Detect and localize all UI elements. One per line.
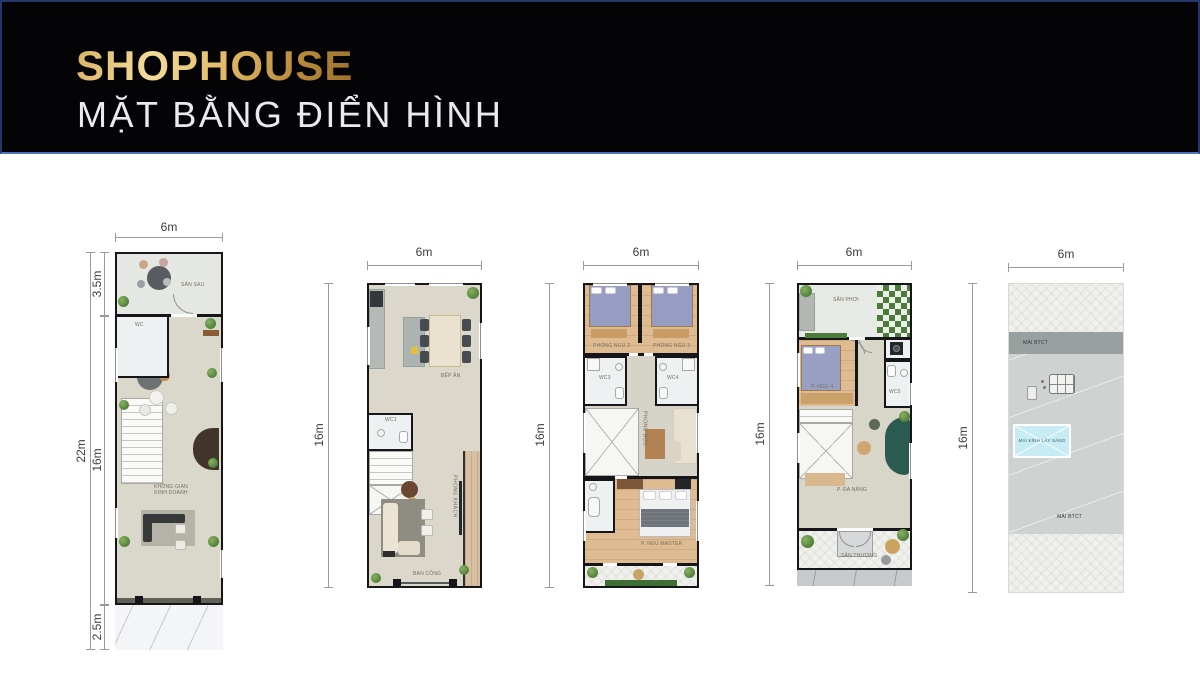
- plan5-width-label: 6m: [1058, 247, 1075, 261]
- door-gap: [629, 353, 638, 356]
- plan3-height-dimension-line: [549, 283, 550, 588]
- plant: [459, 565, 469, 575]
- window: [909, 383, 913, 405]
- window: [696, 501, 700, 541]
- front-porch: [115, 605, 223, 650]
- island-item: [411, 347, 418, 354]
- plan4-height-dimension-line: [769, 283, 770, 586]
- wicker-chair: [885, 539, 900, 554]
- drying-yard-label: SÂN PHƠI: [833, 297, 859, 303]
- terrace-label: SÂN THƯỢNG: [841, 553, 877, 559]
- door-gap: [603, 563, 617, 566]
- plan1-total-height-label: 22m: [74, 439, 88, 462]
- plan3-width-dimension-line: [583, 265, 699, 266]
- plan2-width-label: 6m: [416, 245, 433, 259]
- header-banner: SHOPHOUSE MẶT BẰNG ĐIỂN HÌNH: [0, 0, 1200, 154]
- display-table: [139, 404, 151, 416]
- roof-vent: [1043, 386, 1046, 389]
- balcony-post: [393, 579, 401, 587]
- plant: [899, 411, 910, 422]
- door-gap: [663, 563, 677, 566]
- plant: [205, 318, 216, 329]
- living-room-label: PHÒNG KHÁCH: [451, 475, 457, 537]
- yard-divider-wall: [117, 314, 221, 317]
- wc4-label: WC4: [667, 375, 679, 381]
- window: [220, 550, 224, 578]
- door-gap: [837, 528, 873, 531]
- page-subtitle: MẶT BẰNG ĐIỂN HÌNH: [77, 94, 503, 136]
- plant: [897, 529, 909, 541]
- window: [655, 282, 689, 286]
- yard-chair: [159, 258, 168, 267]
- sink: [615, 363, 623, 371]
- plant: [684, 567, 695, 578]
- plant: [207, 368, 217, 378]
- sink: [900, 369, 908, 377]
- window: [582, 413, 586, 453]
- wicker-chair: [633, 569, 644, 580]
- staircase: [799, 409, 853, 423]
- shower: [587, 358, 600, 371]
- wc1-label: WC1: [385, 417, 397, 423]
- dining-chair: [420, 351, 429, 363]
- side-table: [869, 419, 880, 430]
- window: [909, 443, 913, 479]
- plant: [119, 536, 130, 547]
- dining-chair: [462, 319, 471, 331]
- plant: [800, 285, 812, 297]
- pillow: [815, 347, 825, 354]
- wc3-label: WC3: [599, 375, 611, 381]
- toilet: [659, 387, 668, 399]
- utility-cabinet: [799, 293, 815, 331]
- plan1-main-dimension-line: [104, 316, 105, 605]
- wardrobe: [801, 393, 853, 404]
- bedroom-divider-wall: [638, 285, 642, 343]
- pillow: [659, 491, 672, 500]
- stair-void: [585, 408, 639, 476]
- sofa-chaise: [398, 541, 420, 555]
- plan1-back-label: 3.5m: [90, 271, 104, 298]
- kitchen-label: BẾP ĂN: [441, 373, 460, 379]
- plan5-height-label: 16m: [956, 426, 970, 449]
- door-gap: [644, 353, 653, 356]
- multipurpose-label: P. ĐA NĂNG: [837, 487, 867, 493]
- plant: [119, 400, 129, 410]
- roof-deck-bottom: [1009, 534, 1123, 592]
- tv-console: [459, 481, 462, 535]
- window: [593, 282, 627, 286]
- floor-plan-3: PHÒNG NGỦ 2 PHÒNG NGỦ 3 WC3 WC4 PHÒNG ĐỌ…: [583, 283, 699, 588]
- bedroom-wall: [585, 353, 697, 356]
- pillow: [803, 347, 813, 354]
- planter-strip: [805, 333, 847, 338]
- stone-stool: [881, 555, 891, 565]
- dining-chair: [462, 335, 471, 347]
- balcony-rail: [401, 582, 449, 584]
- sofa-chaise: [667, 441, 681, 461]
- plan2-height-label: 16m: [312, 423, 326, 446]
- wc-label: WC: [135, 322, 144, 328]
- water-tank: [1049, 374, 1075, 394]
- plant: [208, 536, 219, 547]
- armchair: [175, 524, 186, 534]
- window: [796, 353, 800, 387]
- bedroom3-label: PHÒNG NGỦ 3: [653, 343, 690, 349]
- blanket: [641, 509, 689, 527]
- side-table: [383, 551, 395, 557]
- dining-table: [429, 315, 461, 367]
- hedge: [605, 580, 677, 586]
- yard-chair: [139, 260, 148, 269]
- bedroom2-label: PHÒNG NGỦ 2: [593, 343, 630, 349]
- sofa: [143, 514, 152, 542]
- back-yard-label: SÂN SAU: [181, 282, 204, 288]
- window: [696, 413, 700, 453]
- pillow: [653, 287, 664, 294]
- armchair: [175, 540, 186, 550]
- window: [796, 433, 800, 463]
- balcony-post: [449, 579, 457, 587]
- display-table: [149, 390, 164, 405]
- trellis: [877, 285, 910, 337]
- master-cabinet: [617, 479, 643, 489]
- sink: [589, 483, 597, 491]
- bed-bench: [591, 329, 627, 338]
- floor-plan-1: SÂN SAU WC KHÔNG GIAN KINH DOANH: [115, 252, 223, 650]
- plan1-back-dimension-line: [104, 252, 105, 316]
- window: [582, 511, 586, 541]
- plan2-width-dimension-line: [367, 265, 482, 266]
- page-title: SHOPHOUSE: [76, 42, 353, 90]
- washer-door: [893, 345, 900, 352]
- plan4-width-label: 6m: [846, 245, 863, 259]
- plant: [467, 287, 479, 299]
- floor-plan-4: SÂN PHƠI P. NGỦ 4 WC5 P. ĐA NĂNG: [797, 283, 912, 586]
- bedroom4-label: P. NGỦ 4: [811, 384, 833, 390]
- yard-chair: [163, 278, 171, 286]
- shower: [682, 358, 695, 371]
- plan1-main-label: 16m: [90, 448, 104, 471]
- sofa: [383, 503, 398, 553]
- toilet: [399, 431, 408, 443]
- poster-canvas: SHOPHOUSE MẶT BẰNG ĐIỂN HÌNH 6m 22m 3.5m…: [0, 0, 1200, 675]
- business-area-label: KHÔNG GIAN KINH DOANH: [143, 484, 199, 498]
- window: [114, 508, 118, 538]
- plant: [118, 296, 129, 307]
- plan4-height-label: 16m: [753, 422, 767, 445]
- curved-sofa: [885, 417, 910, 475]
- plant: [587, 567, 598, 578]
- plan4-width-dimension-line: [797, 265, 912, 266]
- plan1-width-dimension-line: [115, 237, 223, 238]
- roof-band-label: MÁI BTCT: [1023, 340, 1048, 346]
- pillow: [591, 287, 602, 294]
- front-ledge: [797, 570, 912, 586]
- plan5-height-dimension-line: [972, 283, 973, 593]
- plan1-front-label: 2.5m: [90, 614, 104, 641]
- window: [114, 348, 118, 382]
- display-table: [165, 402, 178, 415]
- stair-void: [799, 423, 853, 479]
- sink: [377, 429, 385, 437]
- toilet: [615, 387, 624, 399]
- dining-chair: [420, 319, 429, 331]
- window: [429, 282, 463, 286]
- balcony-wall: [585, 563, 697, 566]
- plant: [801, 535, 814, 548]
- plant: [208, 458, 218, 468]
- door-gap: [849, 337, 865, 340]
- business-area-label-line2: KINH DOANH: [143, 490, 199, 496]
- stove: [370, 291, 383, 307]
- entry-threshold: [117, 598, 221, 603]
- armchair: [421, 509, 433, 520]
- pillow: [605, 287, 616, 294]
- planter-box: [203, 330, 219, 336]
- skylight-label: MÁI KÍNH LẤY SÁNG: [1018, 438, 1065, 444]
- door-gap: [615, 476, 627, 479]
- roof-lower-label: MÁI BTCT: [1057, 514, 1082, 520]
- master-bedroom-label: P. NGỦ MASTER: [641, 541, 682, 547]
- master-desk: [675, 479, 691, 489]
- roof-deck-top: [1009, 284, 1123, 332]
- pillow: [667, 287, 678, 294]
- plant: [371, 573, 381, 583]
- armchair: [421, 525, 433, 536]
- toilet: [887, 365, 896, 377]
- bench: [805, 473, 845, 486]
- pillow: [675, 491, 687, 500]
- window: [220, 348, 224, 382]
- plan3-width-label: 6m: [633, 245, 650, 259]
- reading-table: [645, 429, 665, 459]
- coffee-table: [401, 481, 418, 498]
- master-wall: [585, 476, 697, 479]
- wc5-label: WC5: [889, 389, 901, 395]
- roof-plan: MÁI BTCT MÁI KÍNH LẤY SÁNG MÁI BTCT: [1008, 283, 1124, 593]
- yard-door-gap: [171, 314, 197, 317]
- entry-post: [135, 596, 143, 604]
- window: [385, 282, 415, 286]
- entry-post: [193, 596, 201, 604]
- skylight: MÁI KÍNH LẤY SÁNG: [1013, 424, 1071, 458]
- dining-chair: [420, 335, 429, 347]
- window: [366, 327, 370, 365]
- window: [479, 323, 483, 359]
- plan1-width-label: 6m: [161, 220, 178, 234]
- balcony-label: BAN CÔNG: [413, 571, 441, 577]
- bedroom4-wall: [855, 340, 858, 406]
- pouf: [857, 441, 871, 455]
- roof-hatch: [1027, 386, 1037, 400]
- pillow: [643, 491, 656, 500]
- roof-vent: [1041, 380, 1044, 383]
- plan5-width-dimension-line: [1008, 267, 1124, 268]
- plan3-height-label: 16m: [533, 423, 547, 446]
- dining-chair: [462, 351, 471, 363]
- sink: [659, 363, 667, 371]
- plan1-front-dimension-line: [104, 605, 105, 650]
- staircase: [369, 451, 413, 485]
- reading-room-label: PHÒNG ĐỌC: [641, 411, 647, 457]
- yard-chair: [137, 280, 145, 288]
- plan2-height-dimension-line: [328, 283, 329, 588]
- bed-bench: [653, 329, 689, 338]
- floor-plan-2: BẾP ĂN WC1 PHÒNG KHÁCH BAN CÔNG: [367, 283, 482, 588]
- bathtub: [588, 497, 600, 517]
